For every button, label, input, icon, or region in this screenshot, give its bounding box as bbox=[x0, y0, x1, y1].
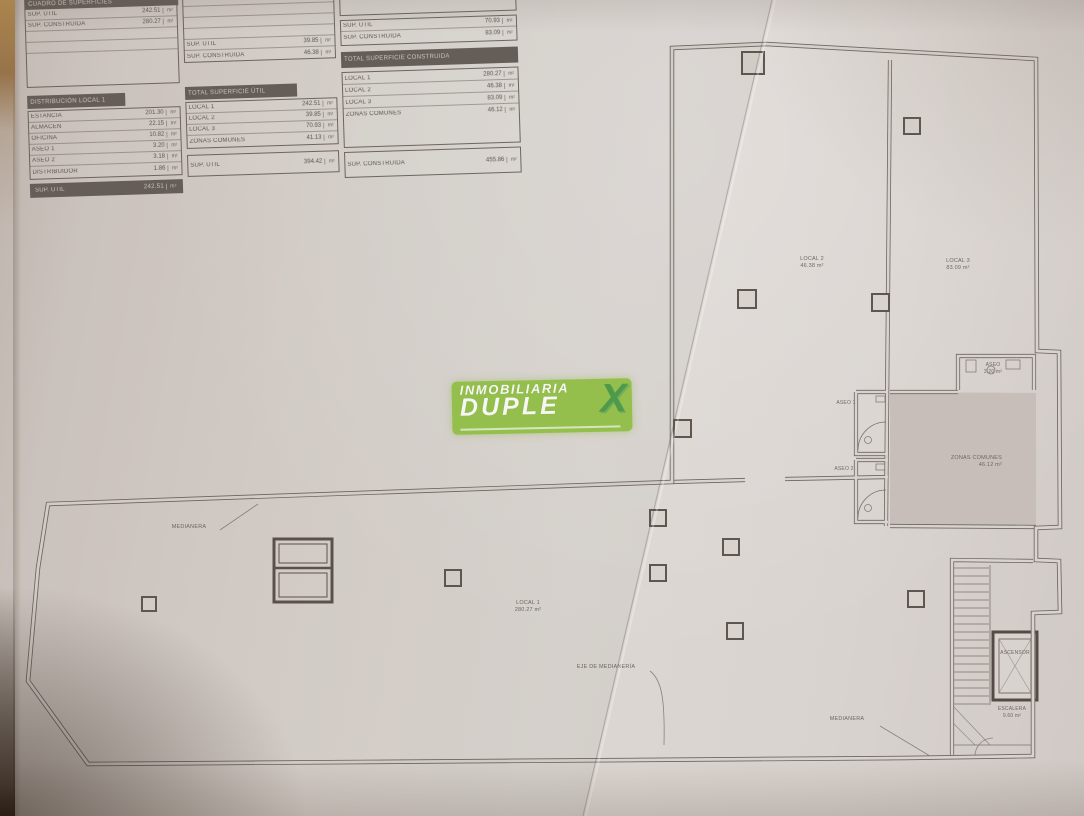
room-label-ascensor: ASCENSOR bbox=[993, 650, 1037, 657]
room-area: 46.12 m² bbox=[898, 462, 1002, 469]
logo-x-icon: X bbox=[600, 376, 628, 422]
room-label-local1: LOCAL 1 280.27 m² bbox=[498, 600, 558, 614]
room-area: 9.60 m² bbox=[988, 713, 1036, 720]
room-label-aseo1: ASEO 1 bbox=[826, 400, 866, 407]
logo-underline bbox=[460, 425, 620, 430]
room-name: LOCAL 3 bbox=[928, 258, 988, 265]
annotation-medianera-bottom: MEDIANERA bbox=[816, 716, 878, 723]
room-area: 83.09 m² bbox=[928, 265, 988, 272]
room-label-aseo2: ASEO 2 bbox=[824, 466, 864, 473]
room-area: 3.20 m² bbox=[968, 369, 1018, 376]
room-label-aseo-top: ASEO 3.20 m² bbox=[968, 362, 1018, 375]
room-name: LOCAL 2 bbox=[782, 256, 842, 263]
room-area: 46.38 m² bbox=[782, 263, 842, 270]
annotation-eje-medianeria: EJE DE MEDIANERÍA bbox=[560, 664, 652, 671]
room-label-escalera: ESCALERA 9.60 m² bbox=[988, 706, 1036, 719]
annotation-medianera-left: MEDIANERA bbox=[158, 524, 220, 531]
room-label-zonas-comunes: ZONAS COMUNES 46.12 m² bbox=[898, 455, 1002, 469]
inmobiliaria-duplex-logo: INMOBILIARIA DUPLE X bbox=[451, 378, 632, 435]
document-photo: LOCAL 2 46.38 m² LOCAL 3 83.09 m² LOCAL … bbox=[0, 0, 1084, 816]
room-area: 280.27 m² bbox=[498, 607, 558, 614]
room-label-local2: LOCAL 2 46.38 m² bbox=[782, 256, 842, 270]
room-label-local3: LOCAL 3 83.09 m² bbox=[928, 258, 988, 272]
room-name: ZONAS COMUNES bbox=[898, 455, 1002, 462]
room-name: LOCAL 1 bbox=[498, 600, 558, 607]
